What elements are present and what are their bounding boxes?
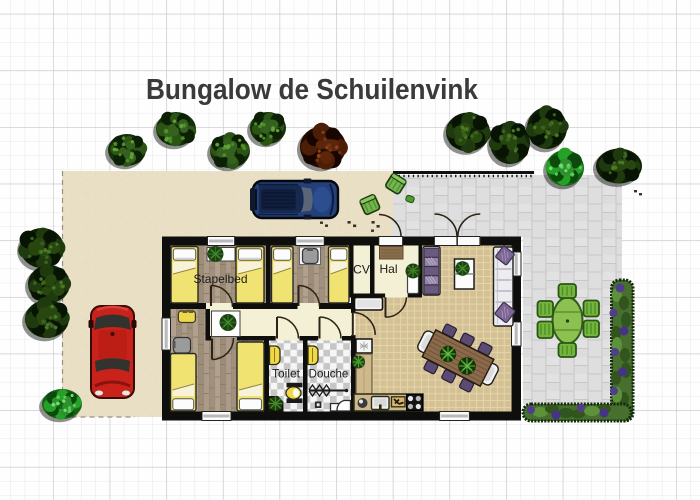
- svg-text:Bungalow de Schuilenvink: Bungalow de Schuilenvink: [146, 74, 479, 106]
- svg-text:Stapelbed: Stapelbed: [193, 272, 247, 286]
- svg-text:Toilet: Toilet: [272, 367, 301, 381]
- svg-text:Douche: Douche: [309, 369, 349, 381]
- svg-text:CV: CV: [353, 263, 370, 277]
- svg-text:Hal: Hal: [379, 262, 397, 276]
